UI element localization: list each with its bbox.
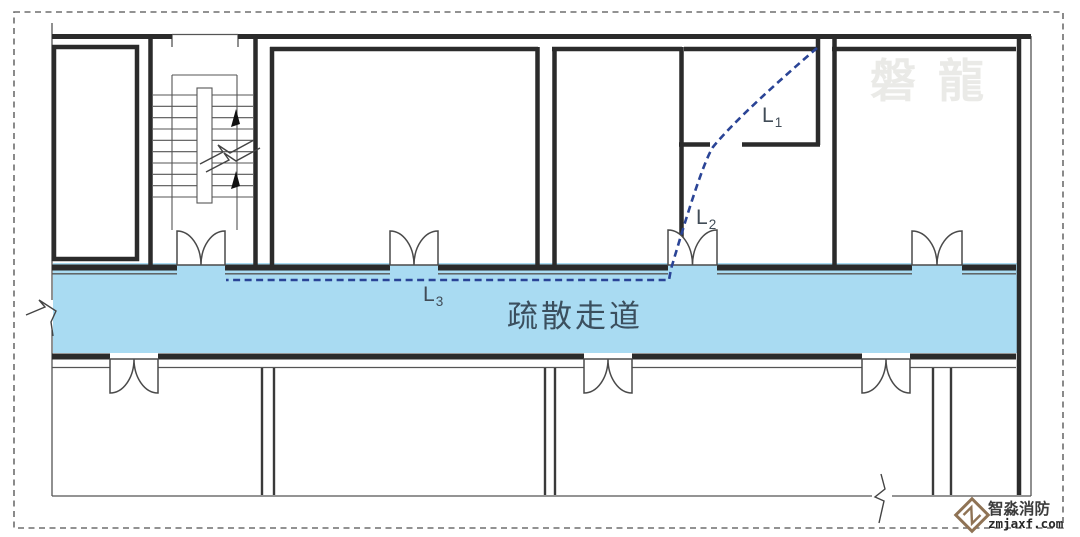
corridor-label: 疏散走道: [507, 299, 643, 334]
room-top-left: [54, 47, 137, 259]
stair-direction-arrow-icon: [231, 171, 240, 189]
brand-domain: zmjaxf.com: [988, 516, 1064, 531]
route-label-l2: L2: [696, 206, 716, 232]
door-symbols-top: [177, 230, 962, 265]
door-bottom-left: [110, 359, 158, 393]
room-walls-bottom-row: [262, 368, 951, 495]
floor-plan-page: 磐龍 L1 L2 L3 疏散: [0, 0, 1080, 537]
floor-plan-svg: 磐龍 L1 L2 L3 疏散: [0, 0, 1080, 537]
brand-logo: 智淼消防 zmjaxf.com: [956, 499, 1064, 532]
evacuation-route-path: [226, 48, 817, 280]
door-room-b: [390, 231, 438, 265]
watermark: 磐龍: [870, 54, 1006, 108]
route-label-l1: L1: [762, 104, 782, 130]
stair-rail: [197, 88, 212, 203]
brand-diamond-icon: [956, 499, 989, 532]
door-symbols-bottom: [110, 359, 910, 393]
door-bottom-right: [862, 359, 910, 393]
door-vestibule: [668, 230, 717, 265]
stairs: [153, 75, 260, 230]
bottom-wall-break-icon: [875, 474, 885, 523]
door-room-e: [912, 231, 962, 265]
door-stairwell: [177, 231, 225, 265]
door-bottom-middle: [584, 359, 632, 393]
